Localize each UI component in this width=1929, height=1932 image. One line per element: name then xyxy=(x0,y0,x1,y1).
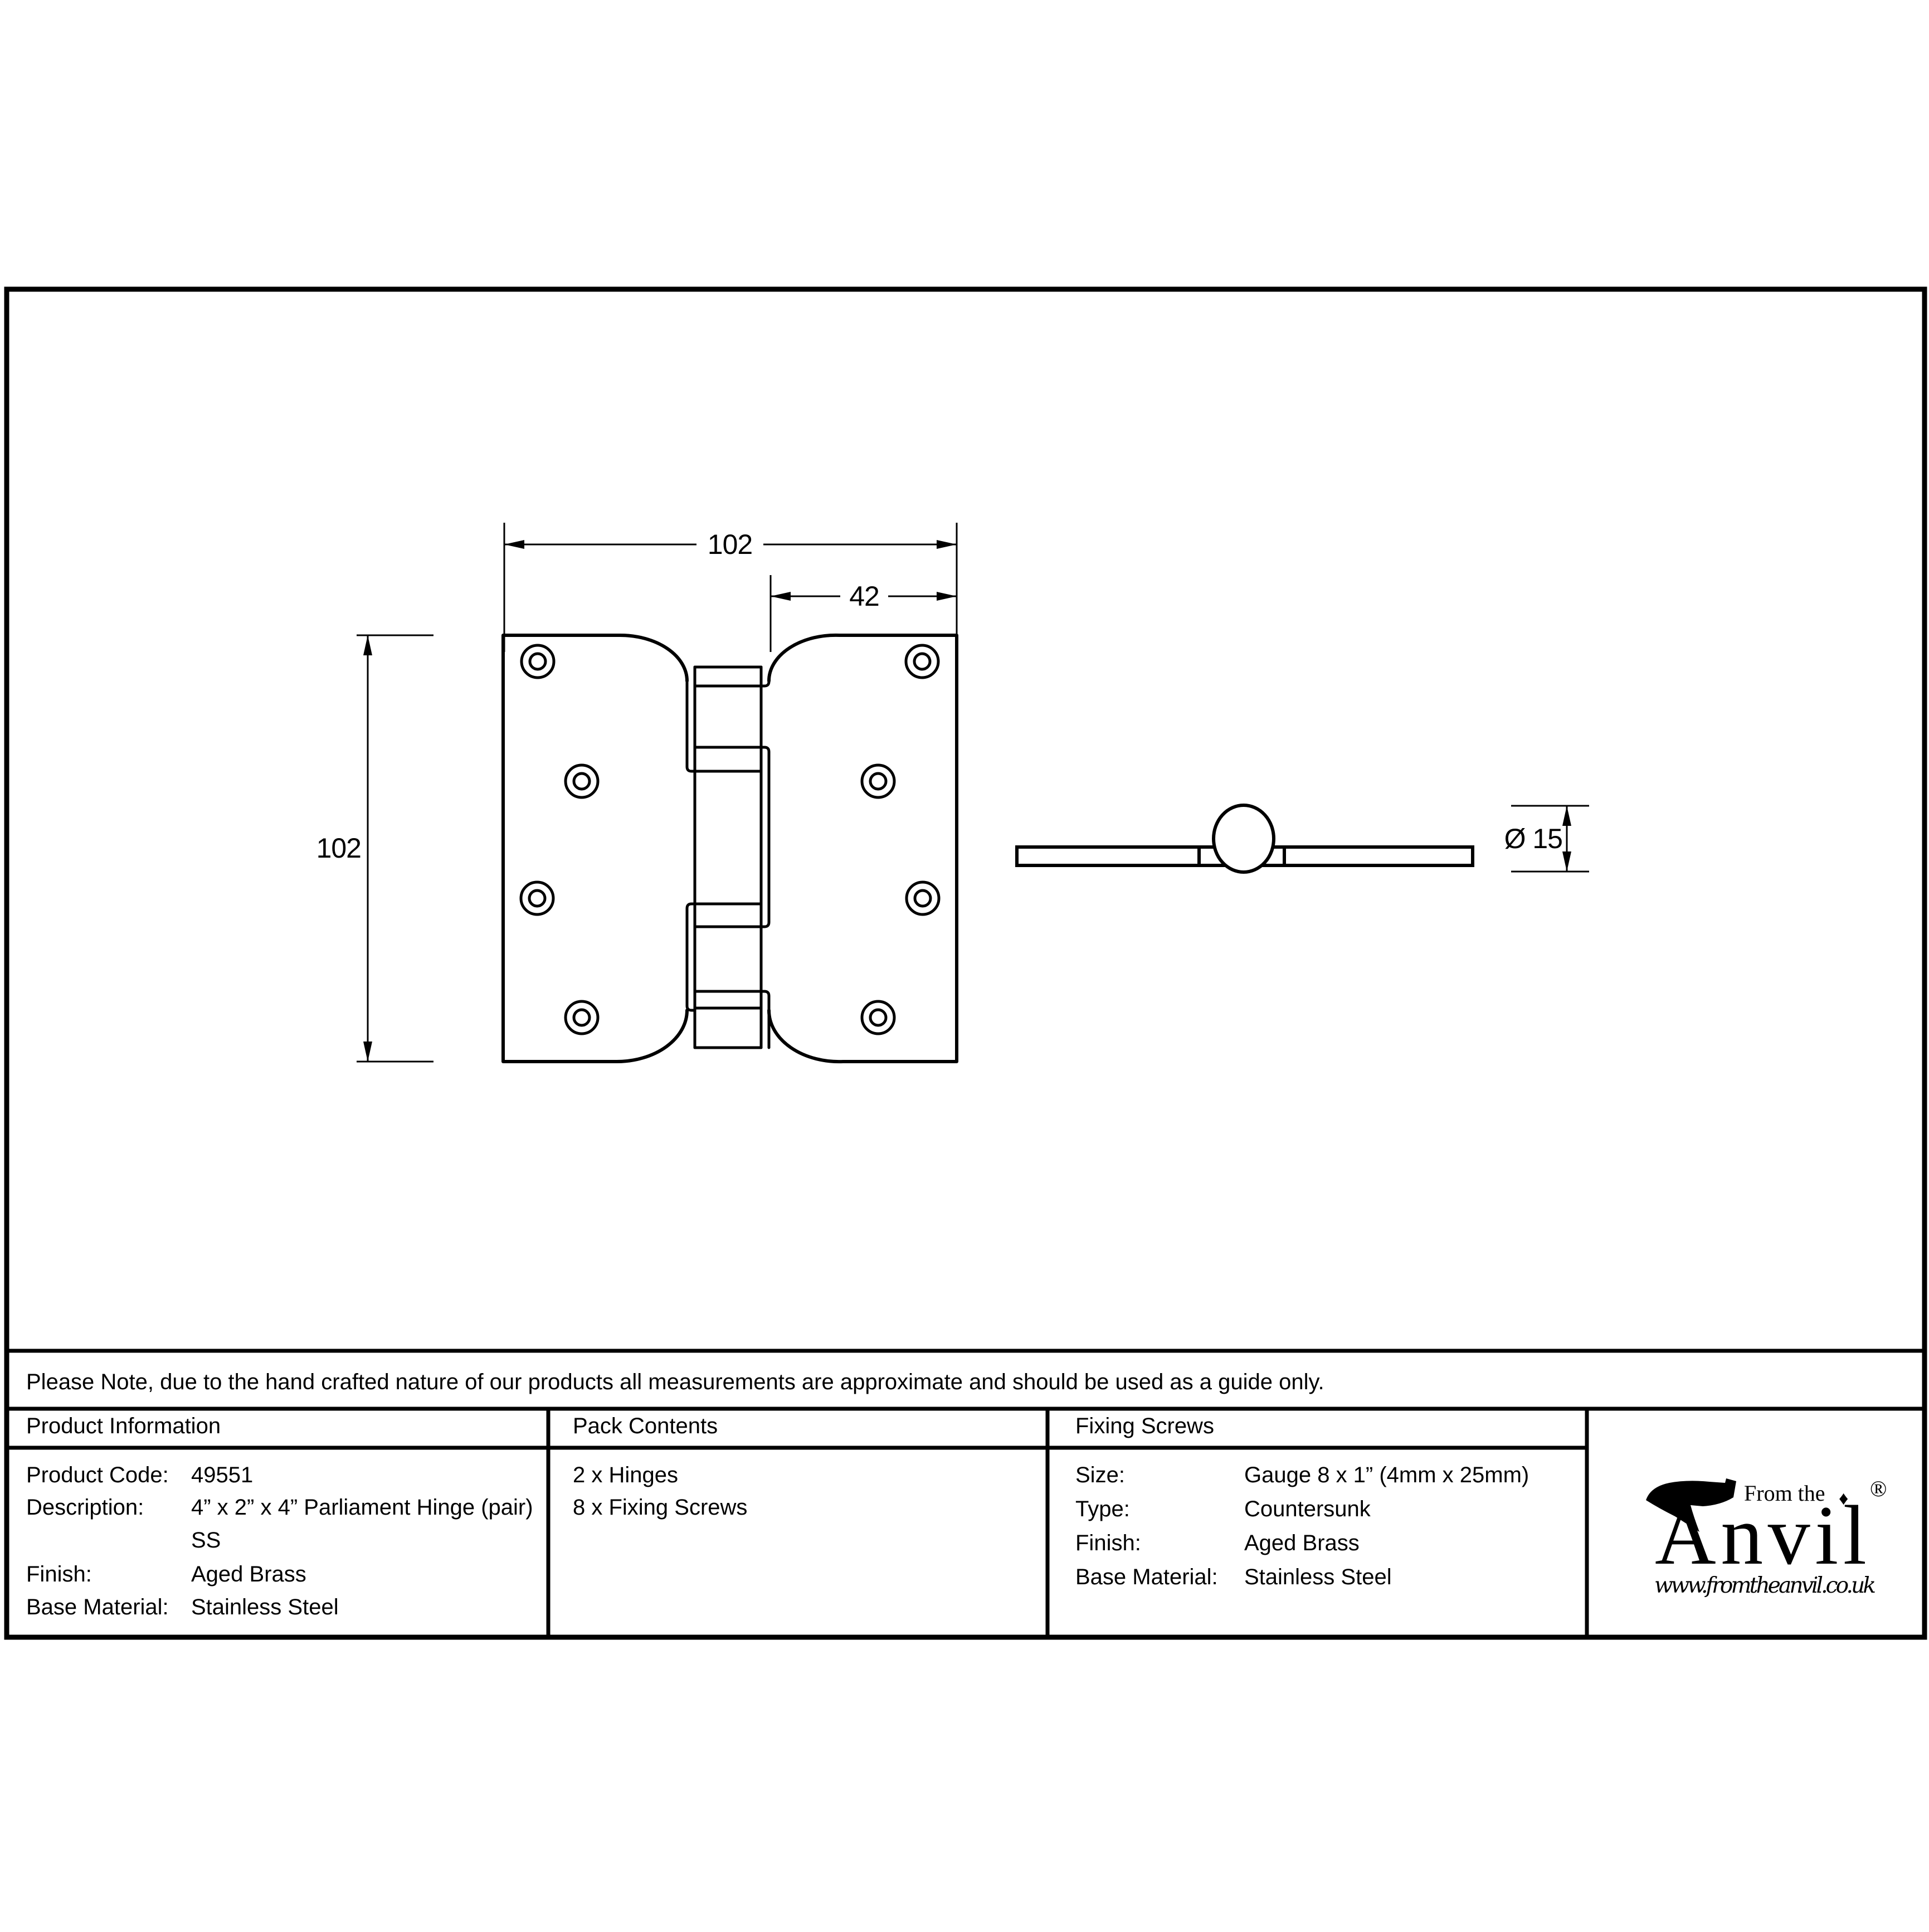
brand-logo: Anvil From the ♦ ® www.fromtheanvil.co.u… xyxy=(1646,1476,1887,1598)
logo-tagline: From the xyxy=(1744,1481,1825,1506)
header-pack-contents: Pack Contents xyxy=(573,1414,718,1438)
dim-width-label: 102 xyxy=(708,529,752,560)
hinge-spec-sheet: 102 42 102 Ø 15 Please Note, due to the … xyxy=(0,0,1929,1929)
screw-base-material-value: Stainless Steel xyxy=(1244,1565,1392,1589)
right-leaf-outline xyxy=(769,635,957,1062)
drawing-sheet: 102 42 102 Ø 15 Please Note, due to the … xyxy=(0,0,1929,1929)
screw-finish-value: Aged Brass xyxy=(1244,1531,1360,1555)
finish-label: Finish: xyxy=(26,1562,92,1587)
arrow-up-icon xyxy=(363,635,372,655)
type-label: Type: xyxy=(1075,1497,1130,1521)
pack-item-1: 2 x Hinges xyxy=(573,1463,678,1487)
product-information-cell: Product Code: 49551 Description: 4” x 2”… xyxy=(26,1463,533,1619)
arrow-down-icon xyxy=(1562,851,1571,872)
outer-border xyxy=(7,289,1925,1637)
dim-partial-width-label: 42 xyxy=(849,581,879,612)
header-product-information: Product Information xyxy=(26,1414,221,1438)
type-value: Countersunk xyxy=(1244,1497,1371,1521)
arrow-left-icon xyxy=(504,540,524,549)
logo-diamond-icon: ♦ xyxy=(1839,1488,1848,1509)
screw-hole-outer xyxy=(862,765,894,797)
product-code-label: Product Code: xyxy=(26,1463,169,1487)
arrow-down-icon xyxy=(363,1042,372,1062)
hinge-side-view xyxy=(1017,805,1473,872)
note-text: Please Note, due to the hand crafted nat… xyxy=(26,1370,1324,1394)
screw-hole-outer xyxy=(566,1001,598,1034)
arrow-right-icon xyxy=(937,592,957,601)
screw-holes xyxy=(521,645,939,1034)
arrow-right-icon xyxy=(937,540,957,549)
screw-hole-inner xyxy=(870,773,886,789)
side-view-knuckle xyxy=(1214,805,1274,872)
base-material-value: Stainless Steel xyxy=(191,1595,339,1619)
size-value: Gauge 8 x 1” (4mm x 25mm) xyxy=(1244,1463,1529,1487)
screw-hole-outer xyxy=(862,1001,894,1034)
arrow-left-icon xyxy=(771,592,791,601)
dim-diameter-label: Ø 15 xyxy=(1504,823,1562,854)
pack-contents-cell: 2 x Hinges 8 x Fixing Screws xyxy=(573,1463,747,1520)
product-code-value: 49551 xyxy=(191,1463,253,1487)
description-value-line2: SS xyxy=(191,1528,221,1553)
logo-registered-mark: ® xyxy=(1870,1476,1887,1501)
screw-hole-outer xyxy=(521,882,553,914)
knuckle-barrel xyxy=(687,667,769,1048)
screw-hole-inner xyxy=(529,890,545,906)
screw-hole-inner xyxy=(915,890,931,906)
screw-hole-inner xyxy=(870,1010,886,1025)
screw-hole-inner xyxy=(530,654,545,669)
screw-hole-inner xyxy=(574,1010,590,1025)
arrowheads xyxy=(363,540,1571,1062)
finish-value: Aged Brass xyxy=(191,1562,306,1587)
description-value: 4” x 2” x 4” Parliament Hinge (pair) xyxy=(191,1495,533,1520)
description-label: Description: xyxy=(26,1495,144,1520)
fixing-screws-cell: Size: Gauge 8 x 1” (4mm x 25mm) Type: Co… xyxy=(1075,1463,1529,1589)
screw-hole-inner xyxy=(914,654,930,669)
hinge-front-view xyxy=(503,635,957,1062)
logo-url: www.fromtheanvil.co.uk xyxy=(1654,1573,1876,1598)
screw-hole-outer xyxy=(907,882,939,914)
screw-hole-inner xyxy=(574,773,590,789)
screw-hole-outer xyxy=(906,645,938,678)
pack-item-2: 8 x Fixing Screws xyxy=(573,1495,747,1520)
arrow-up-icon xyxy=(1562,806,1571,826)
left-leaf-outline xyxy=(503,635,687,1062)
dimension-annotations: 102 42 102 Ø 15 xyxy=(316,523,1589,1062)
size-label: Size: xyxy=(1075,1463,1125,1487)
screw-finish-label: Finish: xyxy=(1075,1531,1141,1555)
header-fixing-screws: Fixing Screws xyxy=(1075,1414,1214,1438)
dim-height-label: 102 xyxy=(316,833,361,864)
screw-hole-outer xyxy=(522,645,554,678)
sheet-border xyxy=(7,289,1925,1637)
screw-base-material-label: Base Material: xyxy=(1075,1565,1218,1589)
base-material-label: Base Material: xyxy=(26,1595,169,1619)
screw-hole-outer xyxy=(566,765,598,797)
